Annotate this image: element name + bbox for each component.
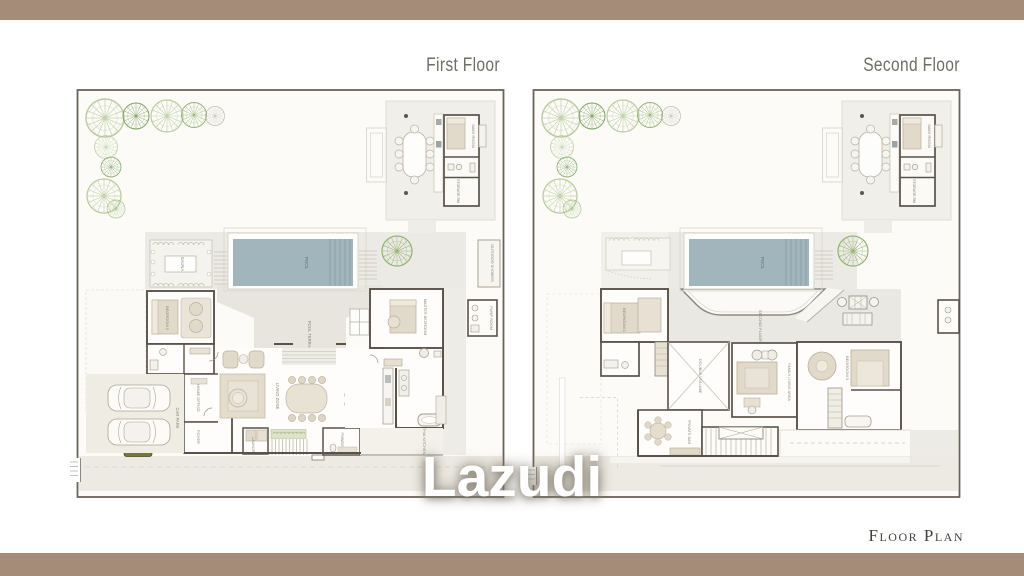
svg-text:HOME OFFICE: HOME OFFICE: [196, 384, 201, 412]
svg-text:BEDROOM 1: BEDROOM 1: [622, 308, 627, 333]
svg-text:FAMILY LIVING AREA: FAMILY LIVING AREA: [787, 363, 791, 401]
svg-text:CAR PARK: CAR PARK: [175, 407, 180, 428]
svg-text:STORAGE RM: STORAGE RM: [456, 179, 460, 203]
svg-text:OUTDOOR SHOWER: OUTDOOR SHOWER: [490, 244, 494, 282]
svg-text:LIVING ZONE: LIVING ZONE: [275, 383, 280, 410]
svg-text:BEDROOM 2: BEDROOM 2: [165, 306, 170, 331]
svg-text:POOL: POOL: [760, 257, 765, 270]
svg-text:FOYER: FOYER: [196, 430, 201, 444]
svg-text:MAID ROOM: MAID ROOM: [471, 124, 476, 148]
svg-text:MAID ROOM: MAID ROOM: [927, 124, 932, 148]
svg-text:MASTER BEDROOM: MASTER BEDROOM: [423, 299, 427, 336]
svg-text:STORAGE RM: STORAGE RM: [912, 179, 916, 203]
svg-text:PUMP ROOM: PUMP ROOM: [489, 306, 493, 330]
svg-text:PRIVATE BAR: PRIVATE BAR: [687, 420, 691, 445]
svg-text:DOUBLE VOLUME: DOUBLE VOLUME: [698, 359, 703, 394]
svg-text:SAUNA: SAUNA: [180, 257, 185, 272]
svg-text:BEDROOM 3: BEDROOM 3: [845, 356, 850, 381]
svg-text:POOL: POOL: [304, 257, 309, 270]
